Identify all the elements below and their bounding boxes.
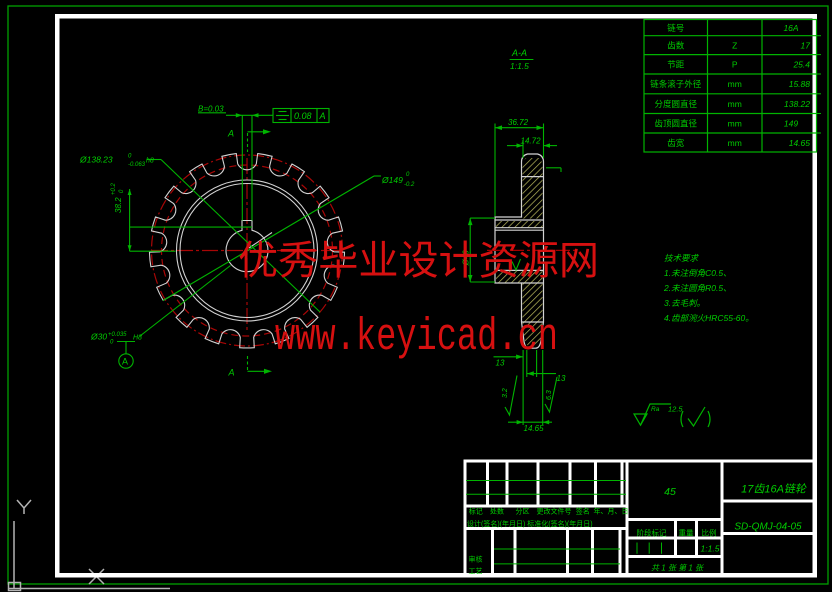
- svg-text:14.65: 14.65: [789, 138, 811, 148]
- svg-text:比例: 比例: [702, 528, 717, 538]
- svg-text:mm: mm: [728, 119, 742, 129]
- svg-text:4.齿部涴火HRC55-60。: 4.齿部涴火HRC55-60。: [664, 313, 754, 323]
- svg-text:1:1.5: 1:1.5: [510, 61, 529, 71]
- svg-text:38.2: 38.2: [114, 197, 123, 213]
- svg-text:审核: 审核: [469, 555, 483, 564]
- svg-text:Ø30: Ø30: [90, 332, 107, 342]
- svg-text:齿数: 齿数: [667, 41, 685, 51]
- svg-text:14.65: 14.65: [524, 424, 545, 433]
- svg-text:B=0.03: B=0.03: [198, 105, 224, 114]
- svg-text:0: 0: [110, 340, 114, 346]
- svg-text:h8: h8: [146, 158, 154, 165]
- svg-text:mm: mm: [728, 79, 742, 89]
- svg-text:A: A: [228, 368, 235, 378]
- svg-text:3.去毛刺。: 3.去毛刺。: [664, 298, 705, 308]
- svg-text:0.08: 0.08: [294, 111, 312, 121]
- svg-text:0: 0: [406, 172, 410, 178]
- svg-text:25.4: 25.4: [792, 60, 810, 70]
- svg-text:mm: mm: [728, 138, 742, 148]
- svg-text:分度圆直径: 分度圆直径: [655, 99, 698, 109]
- svg-text:设计(签名)(年月日) 标准化(签名)(年月日): 设计(签名)(年月日) 标准化(签名)(年月日): [467, 519, 593, 528]
- svg-text:年、月、日: 年、月、日: [594, 507, 629, 516]
- svg-text:138.22: 138.22: [784, 99, 810, 109]
- svg-text:17: 17: [801, 41, 811, 51]
- svg-text:1:1.5: 1:1.5: [701, 544, 720, 554]
- svg-text:45: 45: [664, 486, 676, 498]
- svg-text:2.未注圆角R0.5、: 2.未注圆角R0.5、: [663, 283, 732, 293]
- svg-text:Ø138.23: Ø138.23: [79, 155, 113, 165]
- svg-text:齿顶圆直径: 齿顶圆直径: [655, 119, 698, 129]
- svg-text:3.2: 3.2: [502, 388, 509, 398]
- svg-text:节距: 节距: [667, 60, 685, 70]
- svg-text:链条滚子外径: 链条滚子外径: [650, 79, 702, 89]
- svg-text:阶段标记: 阶段标记: [637, 528, 667, 538]
- svg-text:-0.063: -0.063: [128, 162, 146, 168]
- svg-text:A: A: [227, 129, 234, 139]
- svg-text:A: A: [319, 111, 326, 121]
- svg-text:齿宽: 齿宽: [667, 138, 685, 148]
- svg-text:SD-QMJ-04-05: SD-QMJ-04-05: [734, 522, 802, 533]
- svg-text:16A: 16A: [783, 23, 798, 33]
- svg-text:36.72: 36.72: [508, 118, 529, 127]
- svg-text:1.未注倒角C0.5、: 1.未注倒角C0.5、: [664, 268, 732, 278]
- svg-text:处数: 处数: [490, 507, 504, 516]
- svg-text:A-A: A-A: [511, 48, 527, 58]
- svg-text:更改文件号: 更改文件号: [537, 507, 572, 516]
- svg-text:12.5: 12.5: [668, 405, 683, 414]
- svg-text:0: 0: [128, 154, 132, 160]
- svg-text:www.keyicad.cn: www.keyicad.cn: [275, 312, 558, 363]
- svg-text:+0.2: +0.2: [111, 182, 117, 195]
- svg-text:-0.2: -0.2: [404, 182, 415, 188]
- svg-text:工艺: 工艺: [469, 568, 483, 576]
- svg-text:Ø149: Ø149: [381, 175, 403, 185]
- svg-text:13: 13: [557, 374, 566, 383]
- svg-text:0: 0: [119, 189, 125, 193]
- svg-text:H8: H8: [133, 335, 142, 342]
- svg-text:P: P: [732, 60, 738, 70]
- svg-text:14.72: 14.72: [521, 137, 542, 146]
- svg-text:A: A: [122, 357, 128, 367]
- svg-text:签名: 签名: [576, 507, 590, 516]
- svg-text:技术要求: 技术要求: [664, 253, 700, 263]
- svg-text:17齿16A链轮: 17齿16A链轮: [741, 483, 807, 496]
- svg-text:共 1 张 第 1 张: 共 1 张 第 1 张: [651, 564, 704, 573]
- svg-text:15.88: 15.88: [789, 79, 811, 89]
- svg-text:链号: 链号: [667, 23, 684, 33]
- svg-text:分区: 分区: [516, 507, 530, 516]
- svg-text:优秀毕业设计资源网: 优秀毕业设计资源网: [238, 238, 599, 283]
- svg-text:Z: Z: [732, 41, 737, 51]
- svg-text:标记: 标记: [469, 507, 483, 516]
- svg-text:Ra: Ra: [651, 406, 660, 413]
- svg-text:重量: 重量: [679, 529, 694, 538]
- svg-text:149: 149: [784, 119, 798, 129]
- svg-text:mm: mm: [728, 99, 742, 109]
- svg-text:+0.035: +0.035: [108, 332, 127, 338]
- svg-text:6.3: 6.3: [546, 390, 553, 400]
